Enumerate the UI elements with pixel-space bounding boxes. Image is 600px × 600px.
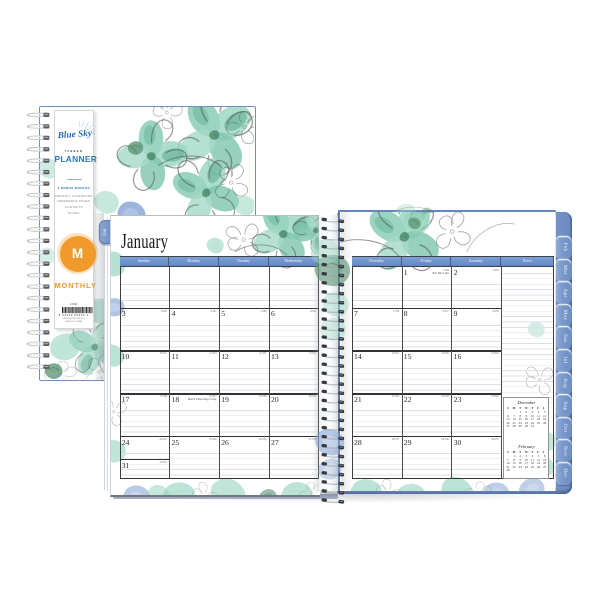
svg-text:Blue Sky: Blue Sky: [56, 128, 93, 141]
